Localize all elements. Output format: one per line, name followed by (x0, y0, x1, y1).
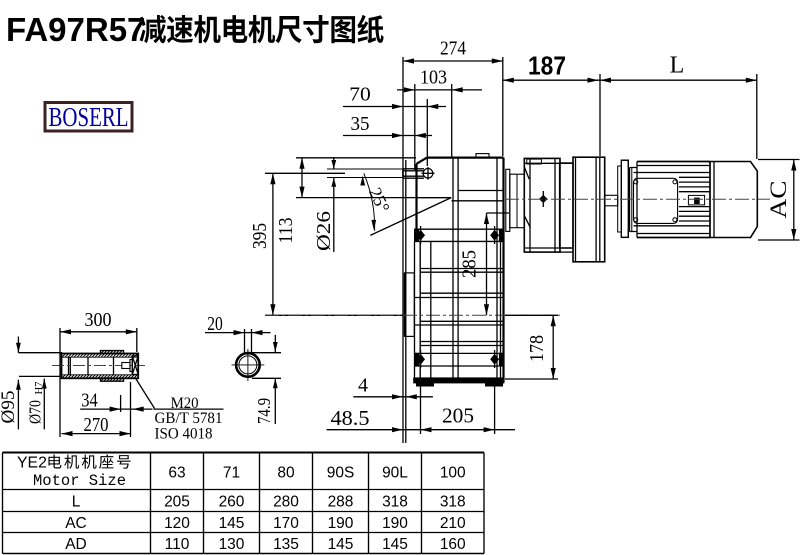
svg-text:145: 145 (328, 536, 354, 553)
svg-text:160: 160 (440, 536, 466, 553)
svg-text:Ø26: Ø26 (313, 211, 335, 251)
svg-text:190: 190 (328, 515, 354, 532)
svg-text:395: 395 (249, 223, 271, 249)
svg-text:L: L (670, 53, 685, 79)
svg-text:90L: 90L (382, 465, 408, 482)
svg-text:48.5: 48.5 (331, 406, 370, 430)
svg-text:135: 135 (273, 536, 299, 553)
svg-text:AC: AC (766, 181, 791, 219)
svg-text:AC: AC (65, 515, 87, 532)
svg-text:130: 130 (219, 536, 245, 553)
svg-text:70: 70 (349, 84, 371, 106)
svg-text:80: 80 (277, 465, 295, 482)
svg-text:Ø95: Ø95 (0, 391, 19, 424)
svg-text:285: 285 (459, 250, 481, 278)
svg-text:103: 103 (420, 67, 447, 89)
svg-text:318: 318 (382, 494, 408, 511)
svg-text:210: 210 (440, 515, 466, 532)
svg-text:AD: AD (65, 536, 87, 553)
svg-text:205: 205 (164, 494, 190, 511)
svg-text:H7: H7 (34, 382, 45, 395)
svg-text:90S: 90S (327, 465, 355, 482)
svg-text:205: 205 (442, 404, 474, 428)
svg-text:71: 71 (223, 465, 240, 482)
svg-text:260: 260 (219, 494, 245, 511)
svg-text:187: 187 (528, 51, 566, 81)
svg-text:274: 274 (440, 38, 466, 60)
svg-text:288: 288 (328, 494, 354, 511)
svg-text:34: 34 (81, 390, 98, 412)
svg-text:145: 145 (382, 536, 408, 553)
svg-text:270: 270 (84, 414, 109, 436)
svg-text:145: 145 (219, 515, 245, 532)
svg-text:35: 35 (351, 113, 370, 135)
svg-text:4: 4 (358, 375, 368, 397)
svg-text:20: 20 (207, 313, 223, 335)
svg-text:170: 170 (273, 515, 299, 532)
svg-text:100: 100 (440, 465, 466, 482)
svg-text:YE2: YE2 (17, 455, 47, 472)
svg-text:63: 63 (168, 465, 185, 482)
svg-text:Motor Size: Motor Size (33, 472, 126, 490)
svg-text:120: 120 (164, 515, 190, 532)
svg-text:BOSERL: BOSERL (49, 102, 129, 132)
svg-text:ISO 4018: ISO 4018 (155, 426, 213, 443)
svg-text:178: 178 (526, 335, 548, 362)
svg-text:GB/T 5781: GB/T 5781 (155, 410, 223, 427)
svg-text:318: 318 (440, 494, 466, 511)
svg-text:113: 113 (275, 218, 297, 244)
svg-text:300: 300 (85, 309, 112, 331)
svg-text:Ø70: Ø70 (26, 400, 45, 424)
svg-text:L: L (72, 494, 81, 511)
svg-text:190: 190 (382, 515, 408, 532)
svg-text:FA97R57: FA97R57 (6, 11, 145, 48)
svg-text:110: 110 (165, 536, 190, 553)
svg-text:74.9: 74.9 (254, 398, 274, 424)
svg-text:280: 280 (273, 494, 299, 511)
